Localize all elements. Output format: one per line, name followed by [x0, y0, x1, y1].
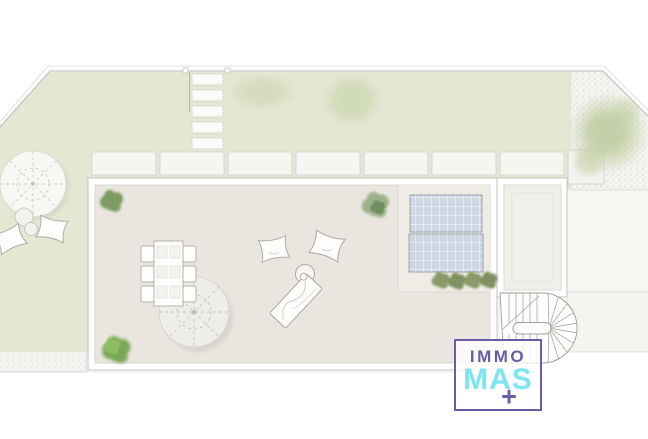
dining-chair	[141, 246, 154, 262]
logo-plus-icon: +	[501, 384, 517, 411]
garden-side-table	[25, 223, 38, 236]
paver-walkway	[92, 152, 564, 175]
logo-text-mas: MAS	[456, 366, 540, 395]
tree-canopy	[226, 72, 298, 112]
gravel-strip-left	[0, 352, 88, 372]
paver-slab	[296, 152, 360, 175]
paver-slab	[160, 152, 224, 175]
immomas-logo: IMMO MAS +	[454, 339, 542, 411]
dining-chair	[183, 286, 196, 302]
paver-slab	[500, 152, 564, 175]
stepping-stone	[192, 106, 223, 117]
stepping-stone	[192, 74, 223, 85]
dining-chair	[141, 266, 154, 282]
paver-slab	[364, 152, 428, 175]
stepping-stone	[192, 138, 223, 149]
plan-drawing	[0, 0, 648, 439]
dining-chair	[183, 246, 196, 262]
dining-chair	[183, 266, 196, 282]
tree-canopy	[321, 72, 383, 128]
paver-slab	[432, 152, 496, 175]
site-plan: IMMO MAS +	[0, 0, 648, 439]
stepping-stone	[192, 90, 223, 101]
stepping-stone	[192, 122, 223, 133]
dining-set	[141, 241, 196, 306]
annex-roof	[497, 178, 567, 297]
solar-panels	[409, 195, 483, 272]
paver-slab	[228, 152, 292, 175]
paver-slab	[92, 152, 156, 175]
dining-chair	[141, 286, 154, 302]
